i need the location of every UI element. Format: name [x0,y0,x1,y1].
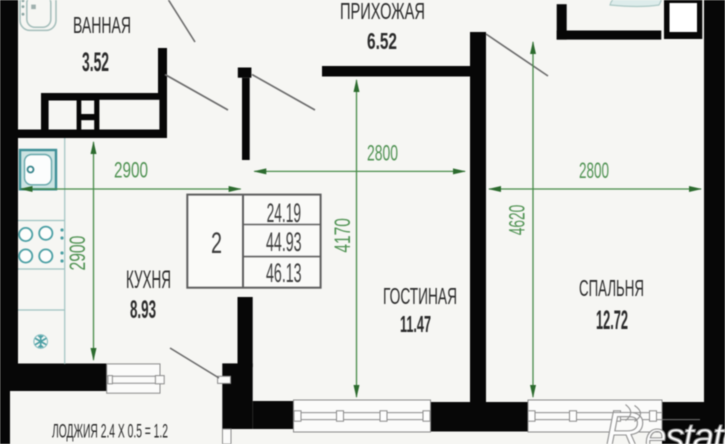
svg-text:КУХНЯ: КУХНЯ [126,266,171,294]
svg-text:estate: estate [645,416,725,444]
svg-text:ПРИХОЖАЯ: ПРИХОЖАЯ [340,0,425,24]
svg-text:46.13: 46.13 [266,258,302,288]
svg-text:2800: 2800 [367,141,398,166]
svg-text:8.93: 8.93 [130,296,156,324]
svg-text:СПАЛЬНЯ: СПАЛЬНЯ [579,275,644,301]
svg-text:2: 2 [211,227,222,260]
svg-text:3.52: 3.52 [82,47,109,77]
svg-text:4620: 4620 [505,205,530,236]
svg-text:12.72: 12.72 [596,305,628,335]
svg-text:ГОСТИНАЯ: ГОСТИНАЯ [383,283,457,309]
svg-text:24.19: 24.19 [267,198,301,228]
svg-text:2800: 2800 [579,158,609,183]
svg-text:ЛОДЖИЯ 2.4 Х 0.5 = 1.2: ЛОДЖИЯ 2.4 Х 0.5 = 1.2 [52,421,168,443]
svg-text:ВАННАЯ: ВАННАЯ [73,12,131,38]
svg-text:R: R [604,400,644,444]
svg-text:2900: 2900 [65,236,90,271]
svg-text:6.52: 6.52 [367,28,397,54]
svg-text:4170: 4170 [330,218,355,253]
svg-text:11.47: 11.47 [400,311,431,337]
svg-text:2900: 2900 [114,158,148,183]
svg-text:44.93: 44.93 [266,227,302,257]
